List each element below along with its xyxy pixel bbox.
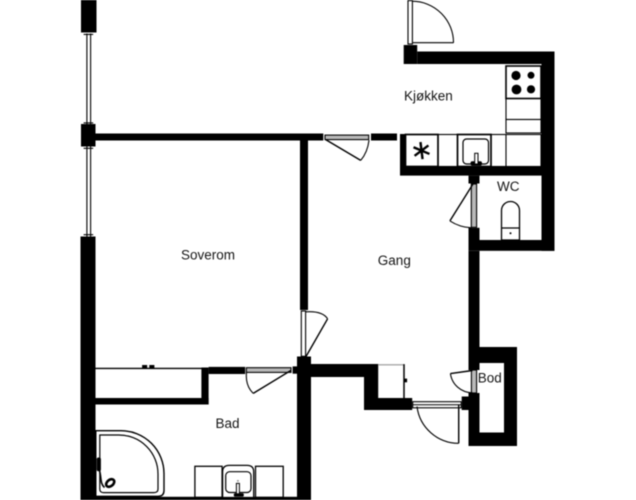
svg-text:WC: WC xyxy=(497,179,520,194)
svg-text:Bod: Bod xyxy=(478,371,502,386)
svg-text:Kjøkken: Kjøkken xyxy=(404,89,453,104)
svg-text:Bad: Bad xyxy=(216,416,240,431)
svg-text:Soverom: Soverom xyxy=(181,247,235,262)
svg-text:Gang: Gang xyxy=(378,253,411,268)
